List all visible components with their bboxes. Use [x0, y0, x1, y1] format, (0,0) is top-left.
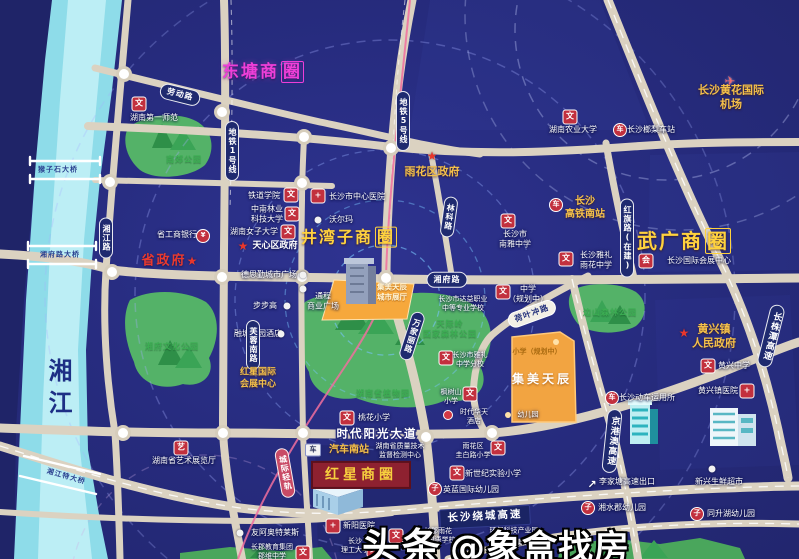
yali-yuhua-wen-icon: 文: [559, 252, 574, 267]
dayi-vocational-school: 长沙市达益职业 中等专业学校: [439, 295, 488, 313]
hongqi-road-pill: 红旗路(在建): [620, 199, 634, 278]
heyechong-road-pill: 荷叶冲路: [506, 298, 559, 331]
airport-plane-icon: ✈: [725, 75, 736, 92]
csu-forestry-wen-icon: 文: [285, 207, 300, 222]
jingwanzi-business-circle-boxed-char: 圈: [375, 227, 397, 248]
central-hospital-cross-icon: +: [311, 189, 326, 204]
xinyang-hospital-cross-icon: +: [326, 519, 341, 534]
tianxin-district-gov: 天心区政府: [252, 241, 297, 253]
yinglan-intl-kindergarten: 英蓝国际幼儿园: [443, 485, 499, 495]
xinxing-dot-icon: [709, 466, 716, 473]
wuguang-business-circle-boxed-char: 圈: [705, 228, 731, 254]
huangxing-town-gov: 黄兴镇 人民政府: [692, 323, 736, 352]
jingwanzi-business-circle-text: 井湾子商: [301, 228, 373, 247]
south-bus-station: 汽车南站: [329, 444, 369, 457]
youa-outlets: 友阿奥特莱斯: [251, 528, 299, 538]
wuguang-business-circle: 武广商圈: [637, 228, 731, 254]
bianshan-forest-park-label: 边山森林公园: [583, 308, 637, 318]
provincial-icbc-bank: 省工商银行: [157, 230, 197, 240]
metro-line5-pill: 地铁5号线: [396, 91, 410, 151]
hongxing-intl-expo-center: 红星国际 会展中心: [240, 367, 276, 390]
rongcheng-garden-hotel: 融城花园酒店: [234, 329, 282, 339]
icbc-bank-icon: ¥: [196, 229, 210, 243]
tiedao-college: 铁道学院: [248, 191, 280, 201]
lijiatang-expressway-exit: 李家塘高速出口: [599, 477, 655, 487]
agri-univ-wen-icon: 文: [563, 110, 578, 125]
art-hall-icon: 艺: [174, 441, 189, 456]
site-kindergarten: 幼儿园: [518, 410, 539, 419]
desiqin-city-plaza: 德思勤城市广场: [241, 270, 297, 280]
hunan-first-normal-wen-icon: 文: [132, 97, 147, 112]
provincial-gov: 省政府: [141, 254, 186, 271]
huangxing-school-wen-icon: 文: [701, 359, 716, 374]
tianxin-gov-star-icon: ★: [238, 239, 249, 255]
xiangjiang-grand-bridge-label: 湘江特大桥: [46, 467, 87, 487]
wanjiali-road-pill: 万家丽路: [398, 310, 427, 362]
jinggangao-expressway-pill: 京港澳高速: [601, 408, 623, 473]
botanical-garden-label: 湖南省植物园: [356, 389, 410, 399]
walmart: 沃尔玛: [329, 215, 353, 225]
train-depot-icon: 车: [605, 391, 619, 405]
rongcheng-dot-icon: [278, 331, 285, 338]
huangxing-gov-star-icon: ★: [679, 326, 690, 342]
yali-branch-wen-icon: 文: [439, 351, 454, 366]
lijiatang-ramp-icon: ↗: [587, 478, 596, 492]
dongtang-business-circle-text: 东塘商: [222, 62, 279, 82]
xinshiji-school-wen-icon: 文: [450, 466, 465, 481]
xiangfu-culture-park-label: 湘府文化公园: [145, 342, 199, 352]
houzishi-bridge-label: 猴子石大桥: [38, 165, 78, 174]
furong-south-road-pill: 芙蓉南路: [246, 320, 260, 370]
map-canvas: 劳动路文湖南第一师范南郊公园东塘商圈地铁1号线猴子石大桥湘江路湘府路大桥湘江湘江…: [0, 0, 799, 559]
huanghua-intl-airport: 长沙黄花国际机场: [697, 84, 765, 113]
hunan-womens-univ: 湖南女子大学: [230, 227, 278, 237]
linke-road-pill: 林科路: [439, 196, 459, 239]
changsha-intl-expo-center: 长沙国际会展中心: [667, 256, 731, 266]
intercity-rail-pill: 城际轻轨: [274, 447, 296, 499]
shidai-sunshine-avenue-label: 时代阳光大道: [337, 427, 418, 442]
xiangshuijun-kind-icon: 子: [581, 501, 595, 515]
site-name-jimei-tianchen: 集美天辰: [512, 372, 572, 388]
changjun-edu-wen-icon: 文: [296, 546, 311, 559]
yuhua-gov-star-icon: ★: [427, 149, 438, 165]
laodong-road-pill: 劳动路: [158, 82, 202, 108]
dongtang-business-circle: 东塘商圈: [222, 61, 304, 83]
map-labels-layer: 劳动路文湖南第一师范南郊公园东塘商圈地铁1号线猴子石大桥湘江路湘府路大桥湘江湘江…: [0, 0, 799, 559]
metro-line1-pill: 地铁1号线: [225, 121, 239, 181]
taohua-primary-school: 桃花小学: [358, 413, 390, 423]
guibai-school-wen-icon: 文: [491, 441, 506, 456]
expo-center-icon: 会: [639, 254, 654, 269]
tianjiling-forest-park-label: 天际岭 国家森林公园: [423, 320, 477, 341]
hunan-first-normal-college: 湖南第一师范: [130, 113, 178, 123]
jimei-showroom-flag-label: 集美天辰 城市展厅: [377, 282, 407, 302]
south-bus-station-icon: 车: [305, 444, 321, 457]
huangxing-middle-school: 黄兴中学: [718, 361, 750, 371]
wuguang-business-circle-text: 武广商: [637, 229, 703, 253]
xiangjiang-river-name: 湘江: [46, 358, 70, 422]
fengshushan-primary-school: 枫树山 小学: [441, 388, 462, 406]
watermark: 头条 @象盒找房: [362, 516, 630, 559]
dongtang-business-circle-boxed-char: 圈: [281, 61, 304, 83]
huangxing-hospital-cross-icon: +: [740, 384, 755, 399]
tongshenghu-kind-icon: 子: [690, 507, 704, 521]
tiedao-college-wen-icon: 文: [284, 188, 299, 203]
south-railway-train-icon: 车: [549, 198, 563, 212]
changsha-central-hospital: 长沙市中心医院: [329, 192, 385, 202]
shidai-huatian-hotel: 时代华天 酒店: [460, 408, 488, 426]
changzhutan-expressway-pill: 长株潭高速: [756, 303, 786, 369]
changsha-south-railway-station: 长沙 高铁南站: [565, 195, 605, 221]
yinglan-kind-icon: 子: [428, 482, 442, 496]
hongxing-business-circle: 红星商圈: [311, 461, 411, 489]
walmart-dot-icon: [315, 217, 322, 224]
changsha-emu-depot: 长沙动车运用所: [619, 393, 675, 403]
site-primary-odot-icon: [553, 339, 559, 345]
watermark-brand: 头条: [362, 516, 442, 559]
nanjiao-park-label: 南郊公园: [166, 155, 202, 165]
desiqin-dot-icon: [300, 272, 307, 279]
bubugao: 步步高: [253, 301, 277, 311]
provincial-gov-star-icon: ★: [187, 254, 198, 270]
xinshiji-experimental-school: 新世纪实验小学: [465, 469, 521, 479]
yali-branch-school: 长沙市雅礼 中学分校: [453, 351, 488, 369]
langli-railway-station: 长沙榔梨车站: [627, 125, 675, 135]
yuhua-district-gov: 雨花区政府: [405, 165, 460, 179]
nanya-school-wen-icon: 文: [501, 214, 516, 229]
jingwanzi-business-circle: 井湾子商圈: [301, 228, 397, 249]
changjun-education-group: 长郡教育集团 郡维中学: [251, 543, 293, 559]
xiangjiang-road-pill: 湘江路: [99, 218, 113, 259]
site-kind-odot-icon: [505, 412, 511, 418]
fengshushan-school-wen-icon: 文: [463, 387, 478, 402]
guibai-primary-school: 雨花区 圭白路小学: [456, 442, 491, 460]
xiangfu-bridge-label: 湘府路大桥: [40, 250, 80, 259]
huangxing-town-hospital: 黄兴镇医院: [698, 386, 738, 396]
shidai-huatian-reddot-icon: [443, 410, 453, 420]
taohua-school-wen-icon: 文: [340, 411, 355, 426]
xiangfu-road-pill: 湘府路: [427, 272, 468, 288]
womens-univ-wen-icon: 文: [281, 225, 296, 240]
hunan-art-exhibition-hall: 湖南省艺术展览厅: [152, 456, 216, 466]
bubugao-dot-icon: [284, 303, 291, 310]
hunan-agricultural-univ: 湖南农业大学: [549, 125, 597, 135]
xiangshuijun-kindergarten: 湘水郡幼儿园: [598, 503, 646, 513]
watermark-handle: @象盒找房: [450, 520, 630, 559]
yali-yuhua-middle-school: 长沙雅礼 雨花中学: [580, 251, 612, 272]
tongcheng-dot-icon: [300, 286, 307, 293]
tongcheng-plaza: 通程 商业广场: [307, 292, 339, 313]
planned-middle-school: 中学 （规划中）: [508, 285, 548, 306]
langli-station-train-icon: 车: [613, 123, 627, 137]
nanya-middle-school: 长沙市 南雅中学: [499, 230, 531, 251]
youa-dot-icon: [237, 530, 244, 537]
site-planned-primary: 小学（规划中）: [513, 347, 562, 356]
tongshenghu-kindergarten: 同升湖幼儿园: [707, 509, 755, 519]
csu-forestry-univ: 中南林业 科技大学: [251, 205, 283, 226]
planned-school-wen-icon: 文: [496, 285, 511, 300]
xinxing-fresh-market: 新兴生鲜超市: [695, 477, 743, 487]
quality-supervision-center: 湖南省质量技术 监督检测中心: [376, 442, 425, 460]
